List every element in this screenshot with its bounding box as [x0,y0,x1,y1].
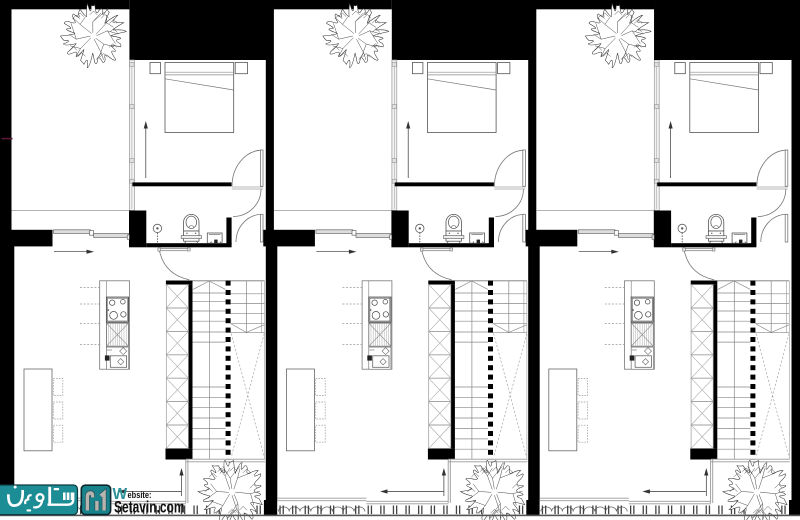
svg-text:Setavin.com: Setavin.com [114,499,185,517]
